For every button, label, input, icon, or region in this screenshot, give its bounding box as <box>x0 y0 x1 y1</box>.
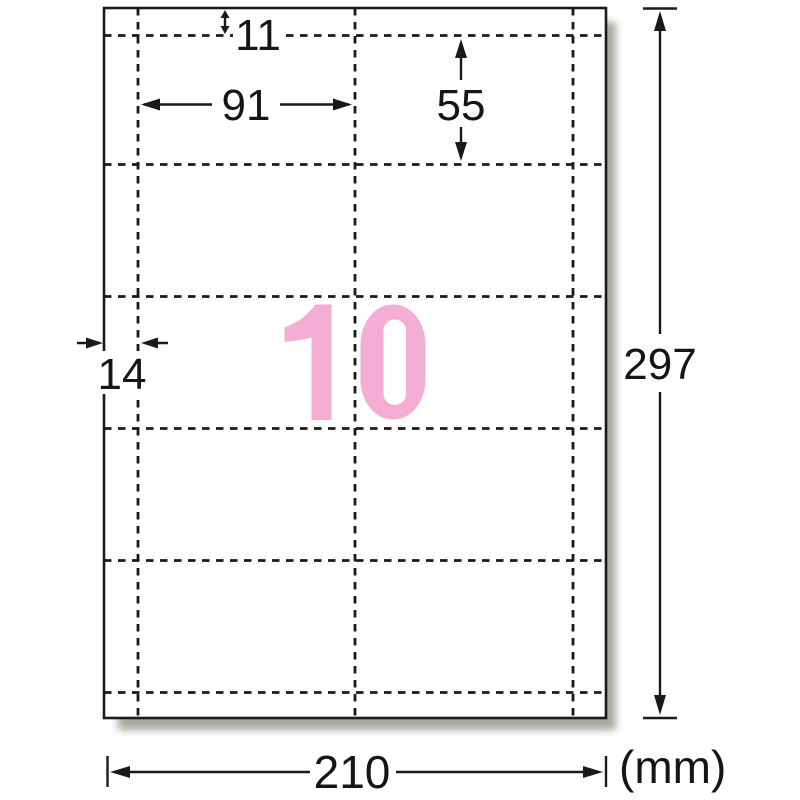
svg-text:14: 14 <box>98 350 147 399</box>
svg-text:11: 11 <box>235 11 281 60</box>
svg-text:91: 91 <box>222 81 271 130</box>
svg-text:297: 297 <box>623 340 696 389</box>
svg-text:55: 55 <box>437 81 486 130</box>
svg-text:(mm): (mm) <box>619 741 726 793</box>
svg-text:210: 210 <box>314 746 391 798</box>
